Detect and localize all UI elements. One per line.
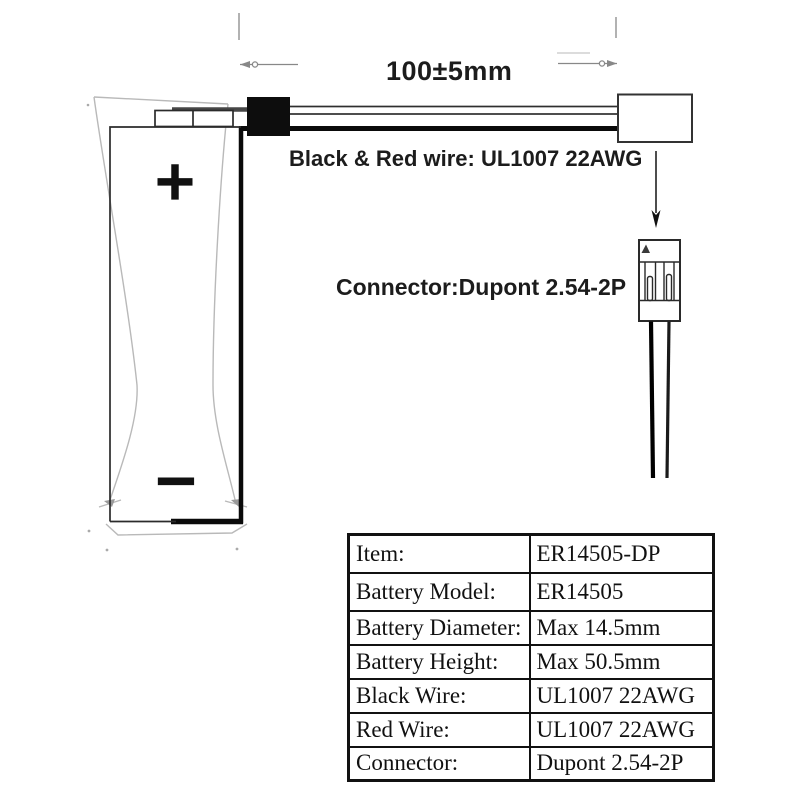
table-row: Battery Diameter: Max 14.5mm — [349, 611, 714, 645]
spec-table: Item: ER14505-DP Battery Model: ER14505 … — [347, 533, 715, 782]
spec-label: Battery Diameter: — [349, 611, 530, 645]
spec-label: Battery Model: — [349, 573, 530, 611]
spec-value: Dupont 2.54-2P — [530, 747, 714, 781]
table-row: Item: ER14505-DP — [349, 535, 714, 573]
negative-terminal-symbol: − — [148, 453, 204, 509]
wire-spec-label: Black & Red wire: UL1007 22AWG — [289, 146, 642, 172]
table-row: Connector: Dupont 2.54-2P — [349, 747, 714, 781]
table-row: Battery Model: ER14505 — [349, 573, 714, 611]
spec-label: Battery Height: — [349, 645, 530, 679]
black-wire — [171, 127, 618, 524]
battery-spec-diagram: 100±5mm Black & Red wire: UL1007 22AWG C… — [0, 0, 800, 800]
dimension-arrowhead-left-icon — [240, 61, 250, 68]
down-arrow-icon — [652, 151, 661, 228]
spec-label: Connector: — [349, 747, 530, 781]
dimension-arrowhead-right-icon — [607, 60, 617, 67]
dupont-connector-drawing — [639, 240, 680, 478]
table-row: Red Wire: UL1007 22AWG — [349, 713, 714, 747]
spec-value: UL1007 22AWG — [530, 679, 714, 713]
connector-spec-label: Connector:Dupont 2.54-2P — [336, 274, 626, 301]
connector-housing — [618, 95, 692, 143]
spec-value: ER14505-DP — [530, 535, 714, 573]
spec-label: Black Wire: — [349, 679, 530, 713]
spec-value: Max 50.5mm — [530, 645, 714, 679]
red-wire — [172, 107, 618, 115]
spec-value: Max 14.5mm — [530, 611, 714, 645]
connector-wire-right — [667, 322, 669, 479]
heat-shrink-sleeve — [247, 97, 290, 136]
spec-label: Red Wire: — [349, 713, 530, 747]
battery-terminal-button — [155, 111, 233, 127]
spec-value: UL1007 22AWG — [530, 713, 714, 747]
table-row: Battery Height: Max 50.5mm — [349, 645, 714, 679]
spec-value: ER14505 — [530, 573, 714, 611]
table-row: Black Wire: UL1007 22AWG — [349, 679, 714, 713]
spec-label: Item: — [349, 535, 530, 573]
positive-terminal-symbol: + — [145, 148, 205, 214]
dimension-label: 100±5mm — [386, 56, 512, 87]
connector-wire-left — [651, 322, 653, 479]
